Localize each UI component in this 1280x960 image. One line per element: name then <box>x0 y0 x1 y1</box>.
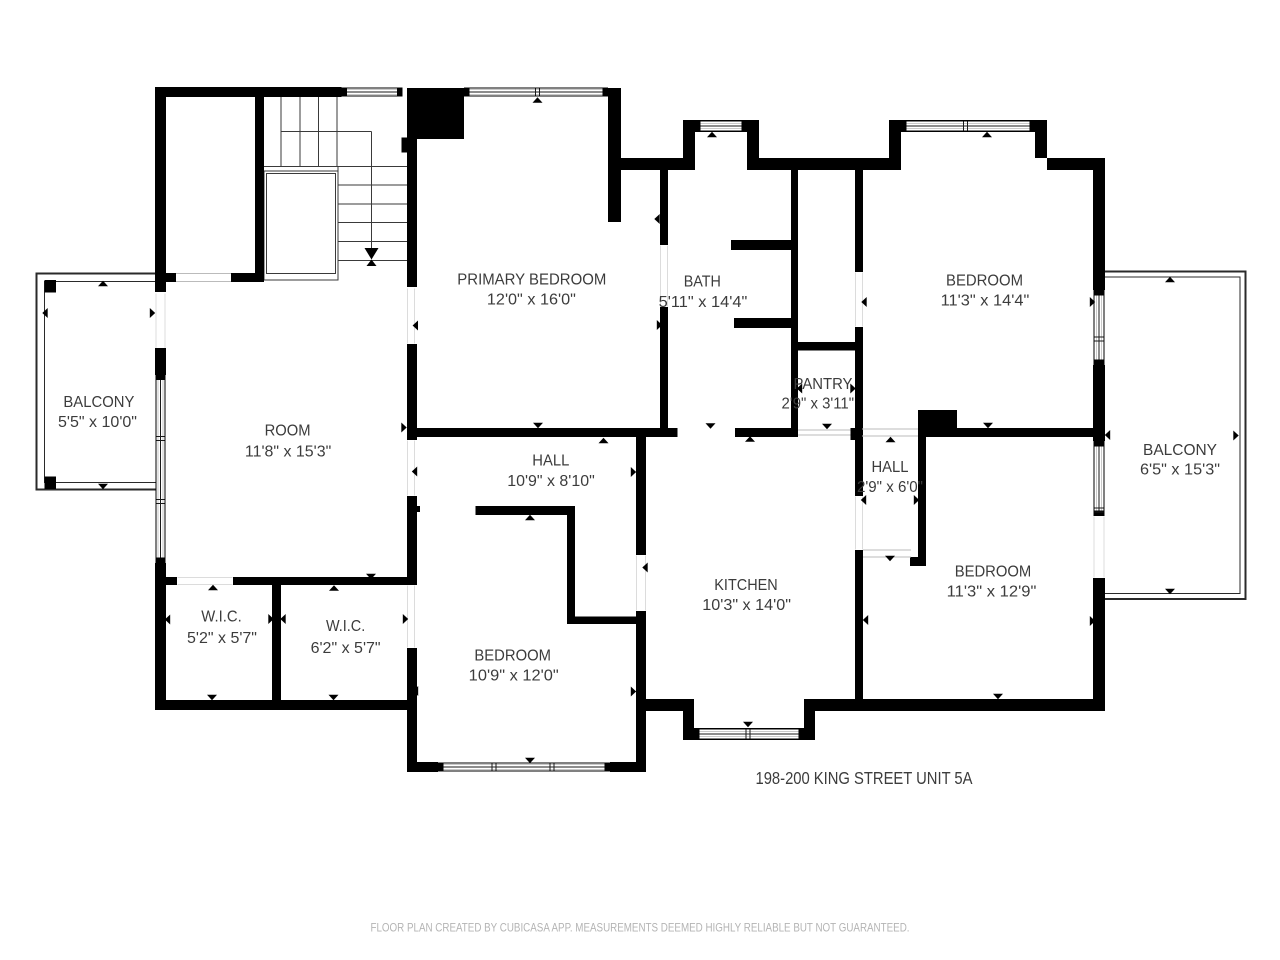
svg-text:HALL: HALL <box>532 453 569 470</box>
svg-text:2'9" x 3'11": 2'9" x 3'11" <box>782 396 855 413</box>
svg-text:HALL: HALL <box>872 459 909 476</box>
svg-text:11'8" x 15'3": 11'8" x 15'3" <box>245 444 331 461</box>
svg-text:10'3" x 14'0": 10'3" x 14'0" <box>702 597 791 614</box>
svg-text:BEDROOM: BEDROOM <box>946 273 1023 290</box>
svg-text:11'3" x 14'4": 11'3" x 14'4" <box>941 293 1030 310</box>
svg-text:FLOOR PLAN CREATED BY CUBICASA: FLOOR PLAN CREATED BY CUBICASA APP. MEAS… <box>371 921 910 935</box>
svg-text:BEDROOM: BEDROOM <box>474 648 551 665</box>
svg-text:BALCONY: BALCONY <box>1143 442 1217 459</box>
svg-text:5'2" x 5'7": 5'2" x 5'7" <box>187 630 257 647</box>
svg-text:PRIMARY BEDROOM: PRIMARY BEDROOM <box>457 272 606 289</box>
svg-text:W.I.C.: W.I.C. <box>201 609 241 626</box>
svg-text:6'5" x 15'3": 6'5" x 15'3" <box>1140 462 1220 479</box>
svg-text:11'3" x 12'9": 11'3" x 12'9" <box>947 584 1037 601</box>
svg-text:BALCONY: BALCONY <box>63 394 134 411</box>
svg-text:W.I.C.: W.I.C. <box>326 618 365 635</box>
svg-text:5'5" x 10'0": 5'5" x 10'0" <box>58 414 137 431</box>
svg-text:KITCHEN: KITCHEN <box>714 577 777 594</box>
svg-text:BATH: BATH <box>684 274 721 291</box>
svg-text:10'9" x 12'0": 10'9" x 12'0" <box>469 668 559 685</box>
svg-text:BEDROOM: BEDROOM <box>955 564 1032 581</box>
svg-text:2'9" x 6'0": 2'9" x 6'0" <box>857 479 923 496</box>
svg-text:ROOM: ROOM <box>265 423 311 440</box>
svg-text:12'0" x 16'0": 12'0" x 16'0" <box>487 292 576 309</box>
svg-text:6'2" x 5'7": 6'2" x 5'7" <box>311 640 381 657</box>
svg-text:198-200 KING STREET UNIT 5A: 198-200 KING STREET UNIT 5A <box>756 768 973 788</box>
svg-text:10'9" x 8'10": 10'9" x 8'10" <box>507 473 595 490</box>
svg-text:5'11" x 14'4": 5'11" x 14'4" <box>659 294 748 311</box>
svg-text:PANTRY: PANTRY <box>794 376 853 393</box>
